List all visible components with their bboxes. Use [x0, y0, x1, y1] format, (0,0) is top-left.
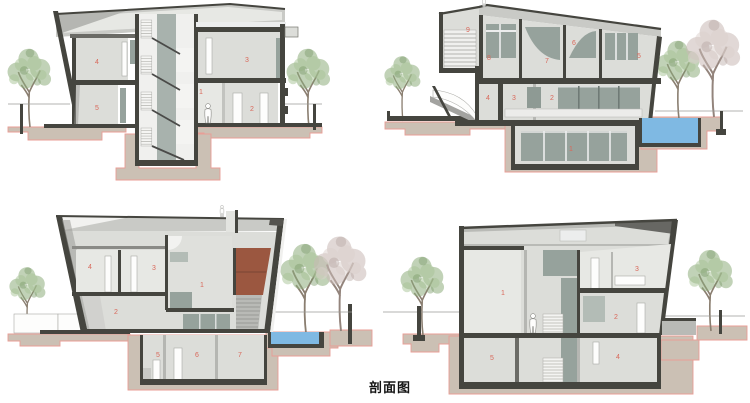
window-slit: [206, 38, 212, 74]
basement-wall: [264, 335, 267, 381]
fence-post: [417, 306, 421, 336]
fence-post: [719, 310, 722, 334]
stair-landing: [176, 48, 194, 72]
caption: 剖面图: [330, 377, 450, 396]
floor-slab: [580, 288, 667, 293]
partition-wall: [165, 235, 168, 310]
door: [105, 256, 111, 292]
ground-slab: [84, 329, 267, 333]
window-slit: [122, 42, 127, 76]
room-label: 3: [245, 57, 249, 64]
glazing-frame: [626, 33, 628, 60]
retaining-box: [662, 321, 696, 335]
room-label: 5: [637, 53, 641, 60]
sections-sheet: 4 5 3 1 2: [0, 0, 750, 403]
counter: [615, 276, 645, 285]
partition-wall: [577, 338, 580, 382]
glazing-room-3: [527, 87, 541, 108]
room-label: 2: [114, 309, 118, 316]
foundation-left: [8, 127, 126, 140]
glazing-panel: [170, 252, 188, 262]
partition-wall: [215, 335, 218, 381]
tower-stair: [444, 30, 476, 70]
door: [233, 93, 242, 124]
partition-wall: [498, 84, 503, 122]
sill-band: [505, 109, 642, 117]
facade-window: [285, 88, 288, 96]
tree: [8, 49, 52, 127]
tower-wall: [439, 12, 443, 70]
core-wall-right: [194, 14, 198, 166]
room-label: 1: [569, 146, 573, 153]
room-label: 4: [88, 264, 92, 271]
ceiling-slab: [464, 246, 524, 250]
door: [260, 93, 268, 124]
tree: [287, 49, 331, 127]
stair-basement: [543, 358, 563, 382]
basement-floor-slab: [459, 382, 661, 389]
basement-floor-slab: [140, 379, 267, 385]
facade-box: [285, 27, 298, 37]
basement-step: [143, 368, 151, 379]
partition-wall: [577, 250, 580, 335]
stair-landing: [176, 120, 194, 144]
partition-wall: [233, 248, 236, 295]
room-label: 1: [199, 89, 203, 96]
partition-wall: [599, 29, 602, 80]
door: [153, 360, 160, 381]
core-glazing: [157, 14, 176, 162]
partition-wall: [524, 250, 527, 335]
room-label: 6: [572, 40, 576, 47]
room-label: 4: [616, 354, 620, 361]
planter-edge: [387, 111, 390, 121]
left-wall: [459, 226, 464, 386]
glazing-panel: [170, 292, 192, 310]
partition-wall: [222, 83, 225, 124]
room-1: [464, 250, 521, 335]
building: [430, 0, 701, 170]
stair-flight: [141, 20, 152, 38]
room-label: 5: [490, 355, 494, 362]
person-figure: [220, 205, 224, 217]
roof-slab-right: [196, 27, 286, 32]
stair-flight: [141, 128, 152, 146]
retaining-wall-cap: [662, 318, 696, 321]
parapet: [196, 22, 286, 27]
room-label: 1: [200, 282, 204, 289]
basement-wall: [140, 335, 143, 381]
fence-post: [720, 111, 723, 131]
right-wall: [280, 24, 285, 127]
parapet: [226, 211, 235, 232]
room-label: 2: [614, 314, 618, 321]
glazing-band-basement: [521, 131, 627, 161]
fence-post: [20, 104, 23, 134]
exterior-stair: [236, 295, 262, 331]
building: [44, 4, 322, 166]
room-4: [76, 250, 118, 292]
partition-line: [611, 252, 613, 290]
partition-wall: [479, 15, 483, 80]
partition-wall: [519, 19, 522, 80]
glazing-strip: [130, 40, 135, 64]
room-label: 7: [238, 352, 242, 359]
glazing-band: [183, 314, 230, 330]
glazing-panel: [543, 250, 577, 276]
facade-window: [285, 106, 288, 114]
door: [637, 303, 645, 333]
basement: [143, 335, 267, 381]
room-label: 5: [95, 105, 99, 112]
basement-wall: [511, 126, 515, 168]
glazing-strip: [120, 88, 126, 123]
room-label: 6: [195, 352, 199, 359]
room-label: 3: [152, 265, 156, 272]
partition-wall: [563, 25, 566, 80]
room-label: 3: [512, 95, 516, 102]
building: [56, 205, 324, 385]
stair-flight: [141, 92, 152, 110]
room-label: 8: [487, 55, 491, 62]
tree: [401, 257, 445, 335]
door: [174, 348, 182, 381]
room-label: 4: [486, 95, 490, 102]
stair: [543, 314, 563, 334]
pool-water: [271, 332, 319, 344]
glazing-frame: [615, 33, 617, 60]
glazing-column: [561, 338, 577, 382]
glazing-room-5: [605, 33, 638, 60]
section-bottom-right: 1 3 2 5 4: [375, 200, 750, 403]
room-4: [76, 38, 128, 80]
door: [593, 342, 599, 364]
door: [131, 256, 137, 292]
section-top-left: 4 5 3 1 2: [0, 0, 375, 200]
ground-slab: [455, 120, 661, 126]
building: [459, 220, 696, 389]
section-top-right: 9 8 7 6 5 4 3 2 1: [375, 0, 750, 200]
ground-slab: [464, 333, 660, 338]
floor-slab: [196, 78, 286, 83]
glazing-column: [561, 278, 577, 336]
left-wall: [475, 66, 479, 124]
partition-wall: [163, 335, 166, 381]
glazing-band-room-2: [558, 86, 640, 109]
basement-floor-slab: [511, 164, 639, 170]
rooflight: [560, 230, 586, 241]
basement-wall: [657, 335, 661, 387]
ground-slab-right: [198, 123, 322, 127]
room-label: 2: [550, 95, 554, 102]
glazing-panel: [583, 296, 605, 322]
foundation-right: [196, 127, 322, 138]
post-footing: [413, 335, 425, 341]
room-label: 2: [250, 106, 254, 113]
partition-wall: [118, 250, 121, 292]
floor-slab: [475, 78, 661, 84]
door: [591, 258, 599, 290]
stair-flight: [141, 56, 152, 74]
room-label: 7: [545, 58, 549, 65]
parapet-edge: [235, 210, 238, 233]
ground-slab-left: [44, 124, 138, 128]
stair-landing: [176, 84, 194, 108]
ceiling-line: [72, 246, 168, 249]
room-3: [121, 250, 165, 292]
room-label: 5: [156, 352, 160, 359]
roof-corner-cap: [269, 219, 284, 226]
pool-water: [642, 118, 698, 143]
floor-slab: [70, 80, 138, 85]
basement-floor-slab: [139, 160, 198, 166]
room-label: 4: [95, 59, 99, 66]
room-label: 1: [501, 290, 505, 297]
foundation-right: [661, 340, 699, 360]
tower-slab: [439, 68, 481, 73]
ceiling-slab: [70, 34, 138, 38]
basement-wall: [515, 338, 519, 382]
section-bottom-left: 4 3 1 2 5 6 7: [0, 200, 375, 403]
glazing-frame: [499, 24, 501, 58]
basement-wall: [635, 126, 639, 168]
floor-slab: [166, 308, 234, 312]
fence-post: [348, 304, 352, 344]
ceiling-slab: [80, 292, 168, 296]
core-wall-left: [135, 14, 139, 166]
post-footing: [716, 129, 726, 135]
room-label: 9: [466, 27, 470, 34]
room-label: 3: [635, 266, 639, 273]
foundation-left: [8, 334, 130, 346]
